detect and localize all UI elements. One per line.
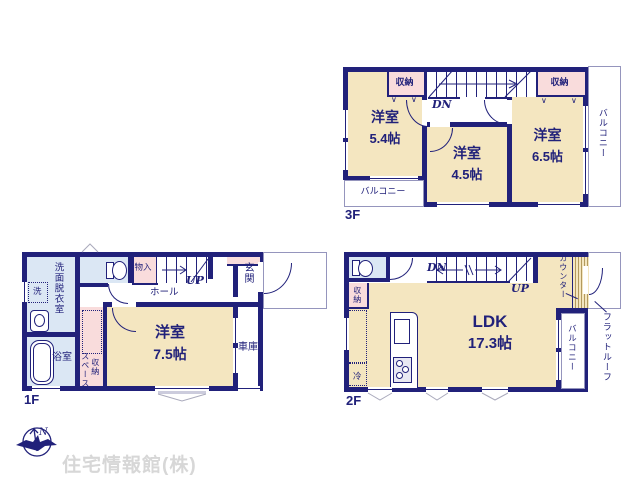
f1-hall-label: ホール: [150, 288, 179, 298]
f3-stairs-dn-label: DN: [432, 99, 452, 111]
toilet-bowl-icon: [358, 260, 373, 277]
f1-garage-label: 車庫: [238, 342, 258, 353]
f1-washer-label: 洗: [33, 287, 42, 296]
opening-marker: [426, 392, 448, 401]
opening-marker: [368, 392, 392, 401]
f1-closet-label: 物入: [132, 263, 154, 272]
f1-bedroom-area: 7.5帖: [110, 347, 230, 362]
opening-marker: [482, 392, 508, 401]
f3-room-54-name: 洋室: [348, 110, 422, 125]
f3-floor-label: 3F: [345, 208, 360, 222]
opening-marker: [82, 243, 98, 252]
f2-ldk-area: 17.3帖: [430, 336, 550, 353]
f2-balcony-label: バルコニー: [567, 324, 576, 372]
f1-washroom-label: 洗面脱衣室: [52, 262, 62, 315]
f2-ldk-name: LDK: [430, 313, 550, 332]
f1-storage-label-right: 収納: [90, 358, 99, 376]
compass-icon: N: [14, 420, 60, 466]
f2-flat-roof-label: フラットルーフ: [601, 312, 611, 382]
f2-closet-label: 収納: [352, 286, 361, 304]
f3-stair-marks: [427, 67, 533, 98]
f3-room-65-area: 6.5帖: [512, 150, 583, 164]
f3-room-65-name: 洋室: [512, 128, 583, 143]
f2-stair-marks: [427, 255, 533, 283]
floor-plan-canvas: ∨ ∨ ∨ ∨ 洋室 5.4帖 洋室 4.5帖 洋室 6.5帖 収納 収納 DN: [0, 0, 640, 480]
folding-door-icon: ∨: [571, 97, 577, 105]
f3-closet-left-label: 収納: [387, 78, 422, 88]
f2-ldk: [349, 283, 583, 387]
f1-storage-dotted: [82, 310, 102, 354]
f2-kitchen-dotted: [349, 310, 367, 364]
f3-closet-right-label: 収納: [536, 78, 583, 88]
folding-door-icon: ∨: [541, 97, 547, 105]
f2-fridge-label: 冷: [353, 372, 362, 381]
f3-balcony-bottom-label: バルコニー: [344, 187, 422, 197]
f1-entrance-label: 玄関: [242, 262, 253, 284]
opening-marker: [158, 391, 206, 402]
f1-bathroom-label: 浴室: [52, 352, 72, 363]
f1-stair-marks: [157, 257, 210, 283]
f1-floor-label: 1F: [24, 393, 39, 407]
toilet-bowl-icon: [112, 261, 127, 280]
f3-room-54-area: 5.4帖: [348, 132, 422, 146]
sink-bowl-icon: [34, 314, 45, 327]
kitchen-sink-icon: [394, 319, 410, 344]
folding-door-icon: ∨: [391, 96, 397, 104]
f2-counter-label: カウンター: [558, 254, 567, 299]
f1-storage-label-left: スペース: [80, 352, 89, 388]
f2-stairs-up-label: UP: [511, 283, 529, 295]
f3-room-45-area: 4.5帖: [427, 168, 507, 182]
watermark-text: 住宅情報館(株): [62, 450, 197, 477]
bathtub-inner: [33, 343, 51, 382]
f3-room-45-name: 洋室: [427, 146, 507, 161]
compass-north-label: N: [38, 427, 49, 438]
f2-floor-label: 2F: [346, 394, 361, 408]
f1-bedroom-name: 洋室: [110, 325, 230, 342]
f3-balcony-right-label: バルコニー: [597, 108, 607, 158]
